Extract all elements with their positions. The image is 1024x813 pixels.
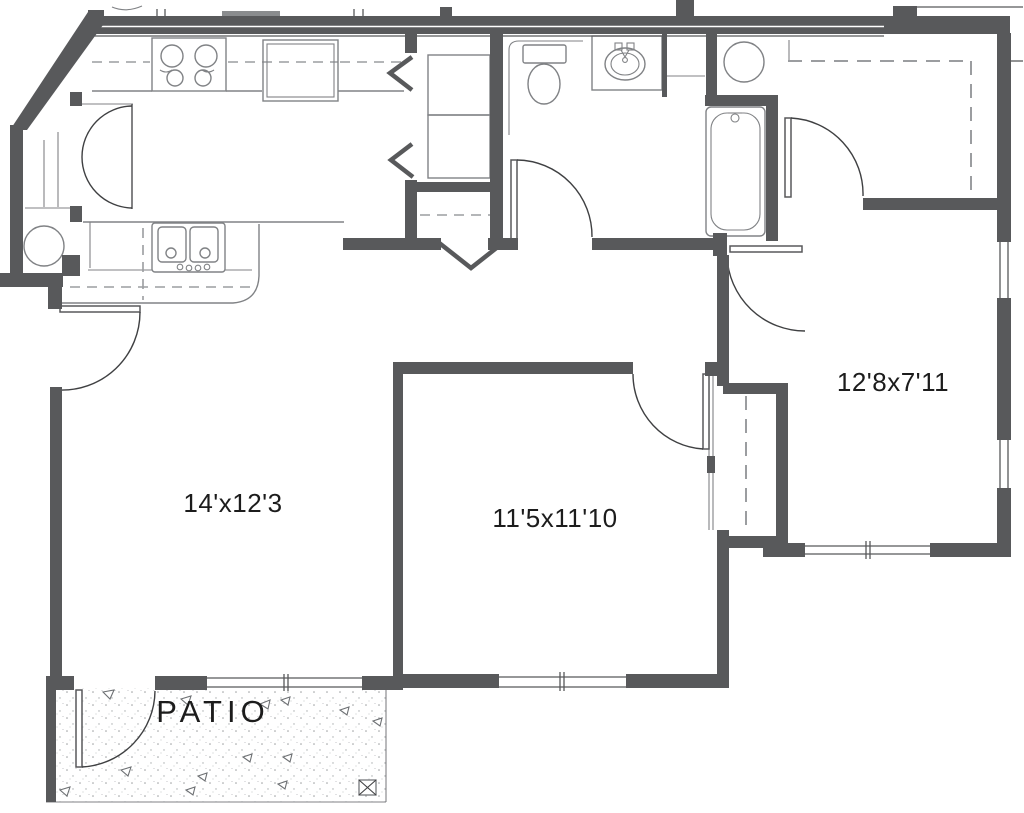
bathroom-door (511, 160, 592, 240)
wall-living-west (50, 387, 62, 678)
room-label-living: 14'x12'3 (183, 488, 282, 518)
wall-hall-south-a (343, 238, 441, 250)
door-swing-arc (517, 160, 592, 237)
window-bedroom2-east-1 (995, 233, 1013, 306)
washer-dryer-stack-icon (428, 55, 490, 178)
bedroom1-door (633, 374, 709, 449)
toilet-icon (523, 45, 566, 104)
wall-south-a (155, 676, 207, 690)
door-swing-arc (791, 118, 863, 196)
bathroom (509, 36, 765, 236)
door-swing-arc (727, 256, 805, 331)
wall-bed2-south-e (930, 543, 1011, 557)
wall-top-jog (893, 6, 917, 34)
window-bedroom2-south (805, 541, 930, 559)
wall-bed1-north (395, 362, 633, 374)
room-label-patio: PATIO (156, 694, 269, 729)
wall-bed1-west (393, 362, 403, 688)
wall-sink-partition (662, 33, 667, 97)
wall-left-upper (10, 125, 23, 287)
window-living-south (207, 674, 362, 691)
wall-tub-east (766, 95, 778, 241)
wall-pier (440, 7, 452, 16)
window-bedroom1-south (499, 672, 626, 691)
wall-right-mid (997, 302, 1011, 438)
wall-patio-west (46, 690, 56, 802)
door-swing-arc (633, 374, 703, 449)
wall-divider-lower (717, 530, 729, 688)
wall-closet-bottom (717, 536, 788, 548)
wall-pier (676, 0, 694, 16)
refrigerator-icon (263, 40, 338, 101)
kitchen-sink-icon (152, 223, 225, 272)
neighbor-wall-bar (222, 11, 280, 16)
windows (207, 233, 1013, 691)
bathroom-sink-icon (592, 36, 662, 90)
room-label-bedroom2: 12'8x7'11 (837, 367, 949, 397)
wall-bed1-south-w (403, 674, 499, 688)
wall-heater-niche (62, 255, 80, 276)
entry-closet (24, 132, 80, 266)
wall-sw-jog (46, 676, 74, 690)
neighbor-door-arc-fragment (112, 6, 142, 10)
wall-laundry-east (490, 32, 503, 250)
kitchen (24, 38, 404, 303)
bedroom1-closet (707, 376, 746, 530)
door-swing-arc (82, 106, 132, 157)
wall-bath-south (592, 238, 717, 250)
bypass-door-pull (707, 456, 715, 473)
bathtub-icon (706, 107, 765, 236)
walk-in-closet-door (785, 118, 863, 197)
wall-laundry-stub (405, 32, 417, 53)
wall-bath-block (713, 233, 727, 256)
entry-door (58, 306, 140, 390)
bedroom2-entry-door (727, 246, 805, 331)
wall-wic-south (863, 198, 1011, 210)
bifold-door-icon (391, 144, 413, 177)
wall-bed1-south-e (626, 674, 729, 688)
window-bedroom2-east-2 (995, 431, 1013, 496)
room-label-bedroom1: 11'5x11'10 (492, 503, 617, 533)
door-swing-arc (82, 157, 132, 208)
bathroom-wall-face (509, 41, 583, 135)
wall-nook-jamb (70, 92, 82, 106)
floor-plan-page: 14'x12'3 11'5x11'10 12'8x7'11 PATIO (0, 0, 1024, 813)
door-swing-arc (58, 312, 140, 390)
pantry-double-door (80, 104, 133, 209)
water-heater-icon (24, 226, 64, 266)
walk-in-closet (724, 40, 971, 196)
patio-drain-icon (359, 780, 376, 795)
wall-top (88, 16, 1010, 34)
wall-laundry-bottom (405, 182, 503, 192)
water-heater-icon (724, 42, 764, 82)
wall-left-spur (0, 273, 63, 287)
stove-icon (152, 38, 226, 91)
wall-bath-nook (706, 32, 717, 97)
wall-divider-upper (717, 255, 729, 386)
wall-diagonal (10, 12, 103, 130)
wall-nook-jamb (70, 206, 82, 222)
wall-closet-right (776, 383, 788, 548)
laundry-closet (390, 55, 490, 178)
wall-entry-jamb (48, 287, 62, 309)
wall-hall-south-b (488, 238, 518, 250)
floor-plan-drawing: 14'x12'3 11'5x11'10 12'8x7'11 PATIO (0, 0, 1024, 813)
